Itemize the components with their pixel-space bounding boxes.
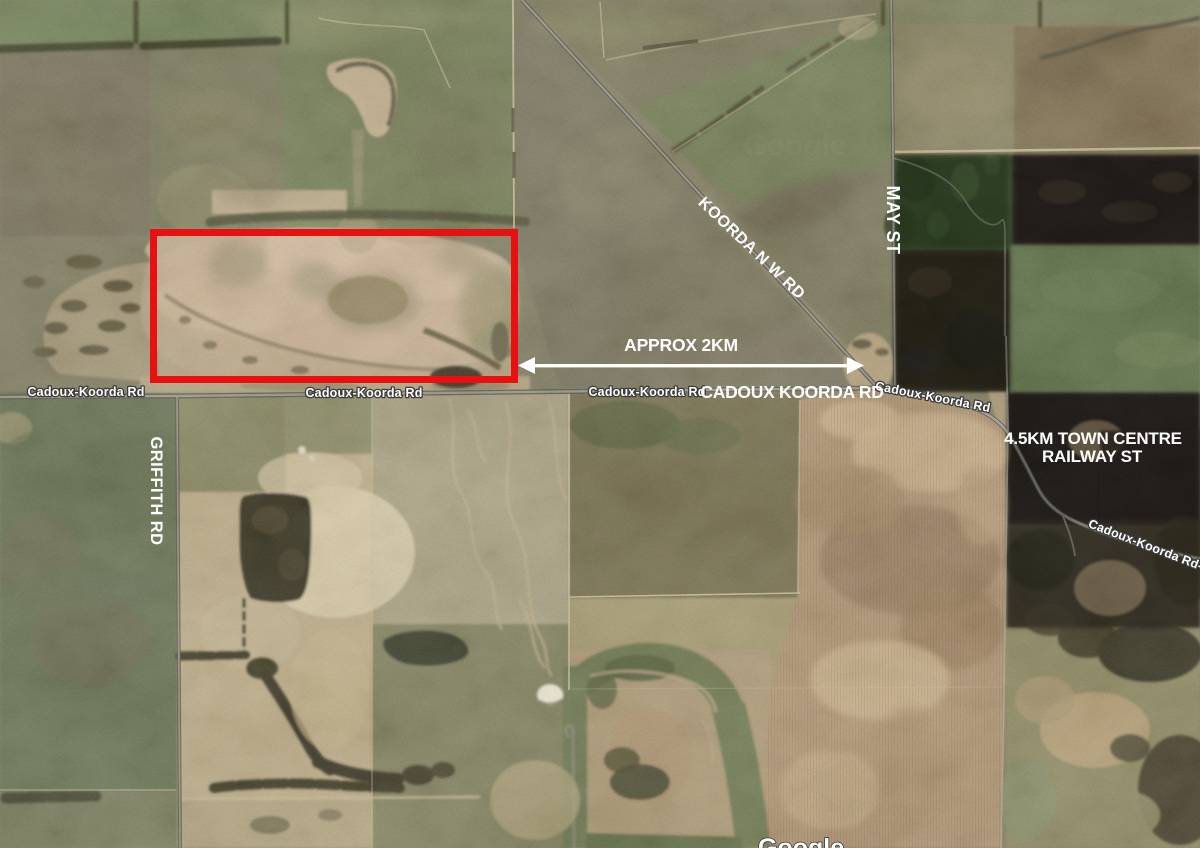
svg-text:GRIFFITH RD: GRIFFITH RD xyxy=(147,437,165,546)
svg-text:Google: Google xyxy=(743,129,846,162)
svg-text:Google: Google xyxy=(758,834,844,848)
svg-text:Cadoux-Koorda Rd: Cadoux-Koorda Rd xyxy=(305,386,422,400)
svg-text:APPROX 2KM: APPROX 2KM xyxy=(624,335,738,355)
svg-text:MAY ST: MAY ST xyxy=(883,185,903,254)
svg-text:CADOUX KOORDA RD: CADOUX KOORDA RD xyxy=(700,382,883,402)
svg-text:4.5KM TOWN CENTRE: 4.5KM TOWN CENTRE xyxy=(1004,429,1182,448)
svg-text:Cadoux-Koorda Rd: Cadoux-Koorda Rd xyxy=(27,385,144,399)
svg-text:Cadoux-Koorda Rd: Cadoux-Koorda Rd xyxy=(588,385,705,399)
svg-text:RAILWAY ST: RAILWAY ST xyxy=(1042,447,1143,466)
